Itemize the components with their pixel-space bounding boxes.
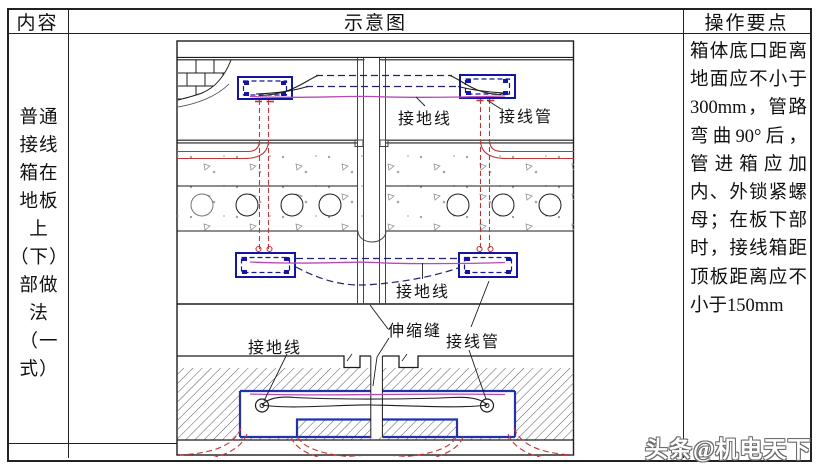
label-conduit-top: 接线管	[499, 103, 553, 127]
header-key-points: 操作要点	[683, 11, 810, 36]
junction-box-mid-right	[459, 253, 517, 277]
junction-box-mid-left	[236, 253, 295, 277]
header-content: 内容	[7, 11, 68, 36]
watermark: 头条@机电天下	[645, 430, 815, 464]
column-divider-left	[68, 8, 69, 458]
label-expansion-joint: 伸缩缝	[388, 317, 442, 341]
brick-wall	[178, 60, 232, 107]
column-divider-right	[683, 8, 684, 458]
junction-box-top-right	[460, 75, 515, 98]
label-ground-wire-top: 接地线	[398, 105, 452, 129]
key-points-text: 箱体底口距离地面应不小于300mm，管路弯曲90°后，管进箱应加内、外锁紧螺母；…	[690, 38, 807, 320]
label-ground-wire-mid: 接地线	[396, 278, 450, 302]
document-page: 内容 示意图 操作要点 普通 接线 箱在 地板 上 （下） 部做 法 （一 式）…	[0, 0, 818, 470]
label-ground-wire-bottom: 接地线	[248, 334, 302, 358]
content-text: 普通 接线 箱在 地板 上 （下） 部做 法 （一 式）	[10, 104, 68, 384]
content-cell-bottom-line	[7, 443, 177, 444]
label-conduit-bottom: 接线管	[446, 328, 500, 352]
header-schematic: 示意图	[68, 11, 683, 36]
